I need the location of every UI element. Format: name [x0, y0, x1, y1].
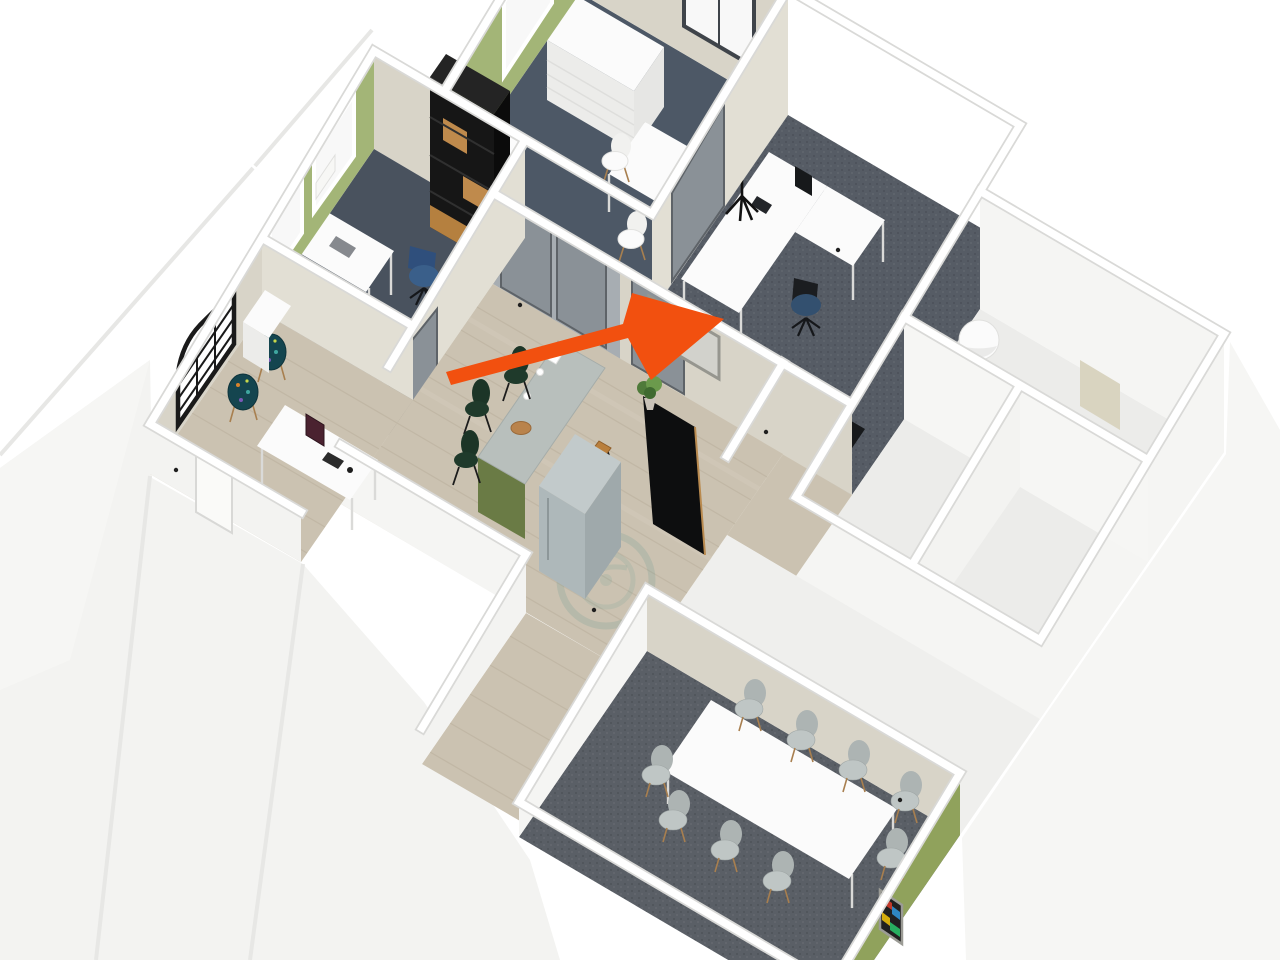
- floorplan-3d-viewport[interactable]: [0, 0, 1280, 960]
- chair-seat: [454, 452, 478, 468]
- desk-accessory: [347, 467, 353, 473]
- plant-leaves: [644, 387, 656, 399]
- cup: [537, 369, 544, 376]
- chair-seat: [504, 368, 528, 384]
- chair-seat: [618, 230, 644, 249]
- chair-seat: [791, 294, 821, 316]
- chair-seat: [465, 401, 489, 417]
- floorplan-screenshot: [0, 0, 1280, 960]
- chair-seat: [602, 152, 628, 171]
- wood-tray: [511, 422, 531, 435]
- chair-shell: [228, 374, 258, 410]
